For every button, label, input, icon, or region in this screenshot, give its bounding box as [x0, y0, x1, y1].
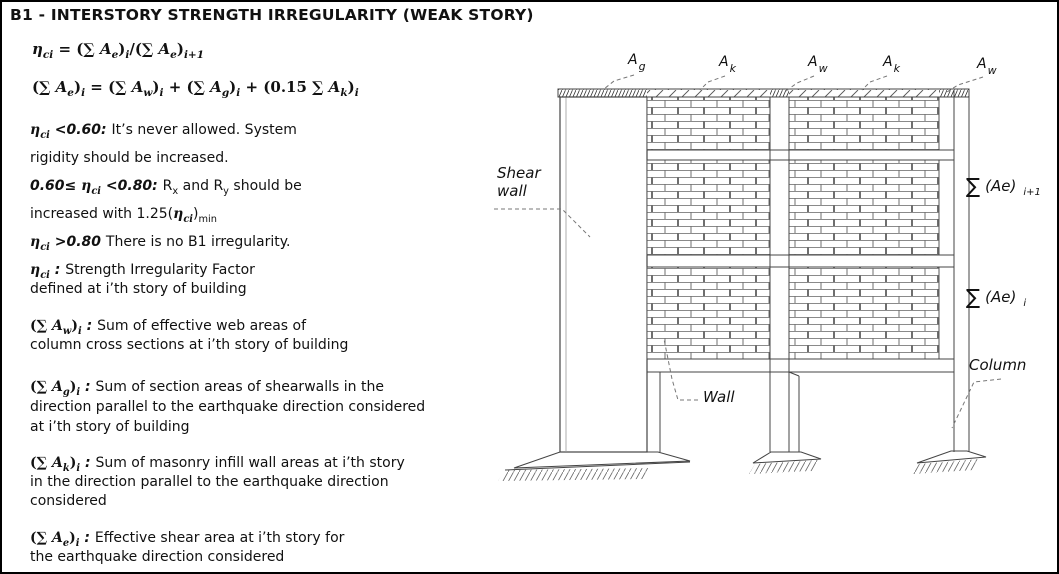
condition-rules: ηci <0.60: It’s never allowed. System ri…	[30, 116, 302, 256]
formula-line: (∑ Ae)i = (∑ Aw)i + (∑ Ag)i + (0.15 ∑ Ak…	[32, 78, 359, 96]
definition-ag: (∑ Ag)i : Sum of section areas of shearw…	[30, 377, 425, 437]
definition-eta: ηci : Strength Irregularity Factor defin…	[30, 261, 255, 299]
masonry-panel	[647, 267, 770, 359]
masonry-panels	[647, 97, 939, 359]
definition-aw: (∑ Aw)i : Sum of effective web areas of …	[30, 317, 348, 355]
sigma-symbol: ∑	[966, 285, 980, 309]
area-label-sub: k	[894, 62, 900, 75]
text-line: (∑ Ae)i : Effective shear area at i’th s…	[30, 529, 344, 548]
area-label-main: A	[719, 54, 729, 70]
text-line: at i’th story of building	[30, 417, 425, 437]
page-title: B1 - INTERSTORY STRENGTH IRREGULARITY (W…	[10, 6, 534, 24]
text-line: increased with 1.25(ηci)min	[30, 200, 302, 228]
text-line: 0.60≤ ηci <0.80: Rx and Ry should be	[30, 172, 302, 200]
area-label-main: A	[977, 56, 987, 72]
ak1-leader	[700, 76, 725, 90]
text-line: rigidity should be increased.	[30, 144, 302, 172]
area-label-sub: w	[819, 62, 828, 75]
text-line: ηci : Strength Irregularity Factor	[30, 261, 255, 280]
masonry-panel	[647, 97, 770, 150]
masonry-panel	[647, 160, 770, 255]
formula-line: ηci = (∑ Ae)i/(∑ Ae)i+1	[32, 40, 204, 58]
ground-story-wall-column	[647, 372, 660, 452]
area-label-aw-1: Aw	[808, 54, 827, 70]
foundation-middle	[749, 452, 821, 474]
area-label-sub: g	[639, 60, 646, 73]
column-leader	[952, 379, 1001, 428]
area-label-ag: Ag	[628, 52, 645, 68]
text-line: (∑ Ag)i : Sum of section areas of shearw…	[30, 377, 425, 397]
shear-wall-label: Shear wall	[497, 164, 541, 200]
ak2-leader	[862, 76, 887, 90]
shear-wall-label-line1: Shear	[497, 164, 541, 182]
sum-body: (Ae)	[985, 177, 1016, 195]
area-label-sub: w	[988, 64, 997, 77]
formula-eta: ηci = (∑ Ae)i/(∑ Ae)i+1	[32, 40, 204, 58]
text-line: ηci <0.60: It’s never allowed. System	[30, 116, 302, 144]
definition-ak: (∑ Ak)i : Sum of masonry infill wall are…	[30, 454, 405, 511]
sigma-symbol: ∑	[966, 174, 980, 198]
area-label-ak-2: Ak	[883, 54, 899, 70]
area-label-main: A	[883, 54, 893, 70]
area-label-main: A	[628, 52, 638, 68]
text-line: considered	[30, 492, 405, 511]
shear-wall	[560, 97, 647, 452]
text-line: (∑ Ak)i : Sum of masonry infill wall are…	[30, 454, 405, 473]
masonry-panel	[789, 267, 939, 359]
slide-page: B1 - INTERSTORY STRENGTH IRREGULARITY (W…	[0, 0, 1059, 574]
area-label-aw-2: Aw	[977, 56, 996, 72]
masonry-panel	[789, 160, 939, 255]
wall-label: Wall	[703, 388, 735, 406]
sum-ae-upper-label: ∑(Ae)i+1	[966, 174, 1041, 198]
text-line: column cross sections at i’th story of b…	[30, 336, 348, 355]
text-line: direction parallel to the earthquake dir…	[30, 397, 425, 417]
definition-ae: (∑ Ae)i : Effective shear area at i’th s…	[30, 529, 344, 567]
top-slab-band	[558, 89, 969, 97]
foundation-left	[498, 452, 690, 481]
sum-ae-lower-label: ∑(Ae)i	[966, 285, 1026, 309]
shear-wall-label-line2: wall	[497, 182, 541, 200]
text-line: in the direction parallel to the earthqu…	[30, 473, 405, 492]
text-line: defined at i’th story of building	[30, 280, 255, 299]
sum-subscript: i+1	[1023, 187, 1041, 198]
ag-leader	[604, 75, 634, 89]
column-label: Column	[969, 356, 1026, 374]
text-line: ηci >0.80 There is no B1 irregularity.	[30, 228, 302, 256]
text-line: (∑ Aw)i : Sum of effective web areas of	[30, 317, 348, 336]
area-label-ak-1: Ak	[719, 54, 735, 70]
foundation-right	[913, 451, 986, 474]
sum-body: (Ae)	[985, 288, 1016, 306]
sum-subscript: i	[1023, 298, 1026, 309]
text-line: the earthquake direction considered	[30, 548, 344, 567]
area-label-main: A	[808, 54, 818, 70]
area-label-sub: k	[730, 62, 736, 75]
masonry-panel	[789, 97, 939, 150]
formula-ae: (∑ Ae)i = (∑ Aw)i + (∑ Ag)i + (0.15 ∑ Ak…	[32, 78, 359, 96]
